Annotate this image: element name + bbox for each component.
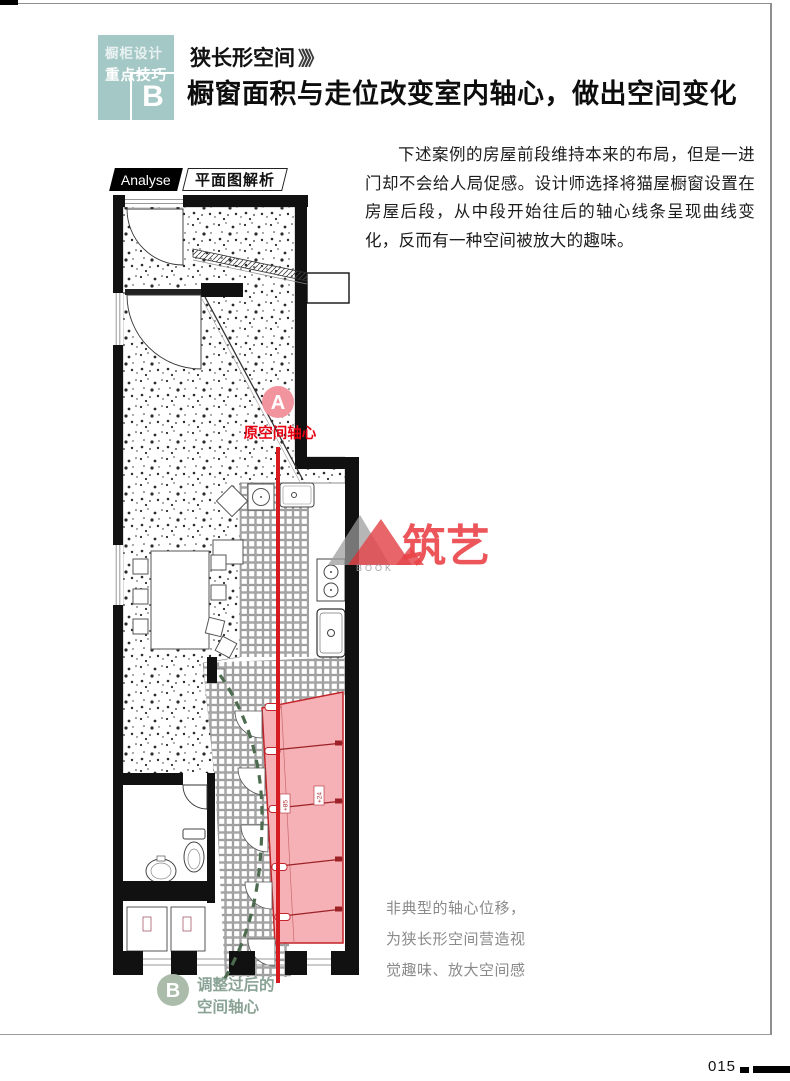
wall-pier: [171, 951, 197, 975]
page-border-top: [0, 3, 772, 4]
plan-caption: 非典型的轴心位移， 为狭长形空间营造视 觉趣味、放大空间感: [386, 893, 526, 986]
marker-b-label-line1: 调整过后的: [197, 975, 275, 994]
page-title: 橱窗面积与走位改变室内轴心，做出空间变化: [187, 72, 737, 111]
dimension-tag: [143, 917, 151, 931]
duct-box: [307, 273, 349, 303]
section-subtitle-text: 狭长形空间: [190, 47, 295, 70]
chair: [133, 589, 148, 604]
cabinet-tag-text: +85: [283, 800, 290, 811]
page-border-bottom: [0, 1034, 771, 1035]
chair: [133, 619, 148, 634]
corner-mark: [0, 0, 18, 5]
analyse-label: Analyse 平面图解析: [112, 168, 285, 191]
wall: [345, 469, 359, 975]
marker-a-letter: A: [271, 392, 285, 414]
analyse-label-zh: 平面图解析: [182, 168, 288, 191]
footer-square: [740, 1067, 749, 1073]
body-paragraph: 下述案例的房屋前段维持本来的布局，但是一进门却不会给人局促感。设计师选择将猫屋橱…: [365, 141, 755, 255]
caption-line: 非典型的轴心位移，: [386, 893, 526, 924]
marker-b-letter: B: [166, 980, 180, 1002]
wall-pier: [285, 951, 307, 975]
cabinet-tag-text: +24: [317, 792, 324, 803]
watermark-brand-text: 筑艺: [402, 522, 490, 571]
threshold-sill: [125, 289, 201, 295]
chair: [205, 617, 224, 636]
floor-plan: +85 +24: [113, 195, 363, 1025]
chair: [211, 555, 226, 570]
dining-table: [151, 551, 209, 649]
analyse-label-en: Analyse: [109, 168, 183, 191]
wall-pier: [331, 951, 359, 975]
watermark-triangle-red-small: [396, 547, 424, 565]
toilet: [183, 829, 205, 839]
caption-line: 为狭长形空间营造视: [386, 924, 526, 955]
chevrons-icon: 》》》: [298, 49, 318, 70]
page-number: 015: [708, 1058, 736, 1075]
footer-bar: [753, 1066, 790, 1073]
chapter-tag-letter: B: [130, 72, 174, 120]
wall: [123, 881, 211, 901]
laundry-unit: [317, 609, 345, 657]
section-subtitle: 狭长形空间》》》: [190, 42, 318, 72]
marker-a-label: 原空间轴心: [244, 424, 317, 442]
wall: [295, 457, 359, 469]
bathroom-sink: [146, 859, 176, 883]
page-border-right: [770, 3, 772, 1035]
dimension-tag: [183, 917, 191, 931]
wall: [201, 283, 243, 297]
wall: [207, 657, 217, 683]
chapter-tag-line1: 橱柜设计: [105, 42, 174, 62]
chair: [133, 559, 148, 574]
wall-pier: [115, 951, 143, 975]
cat-cabinet-zone: [262, 692, 343, 943]
chair: [211, 585, 226, 600]
chapter-tag-box: 橱柜设计 重点技巧 B: [98, 35, 174, 120]
caption-line: 觉趣味、放大空间感: [386, 955, 526, 986]
wall: [295, 195, 307, 459]
marker-b-label-line2: 空间轴心: [197, 997, 260, 1016]
book-page: 橱柜设计 重点技巧 B 狭长形空间》》》 橱窗面积与走位改变室内轴心，做出空间变…: [0, 0, 790, 1081]
